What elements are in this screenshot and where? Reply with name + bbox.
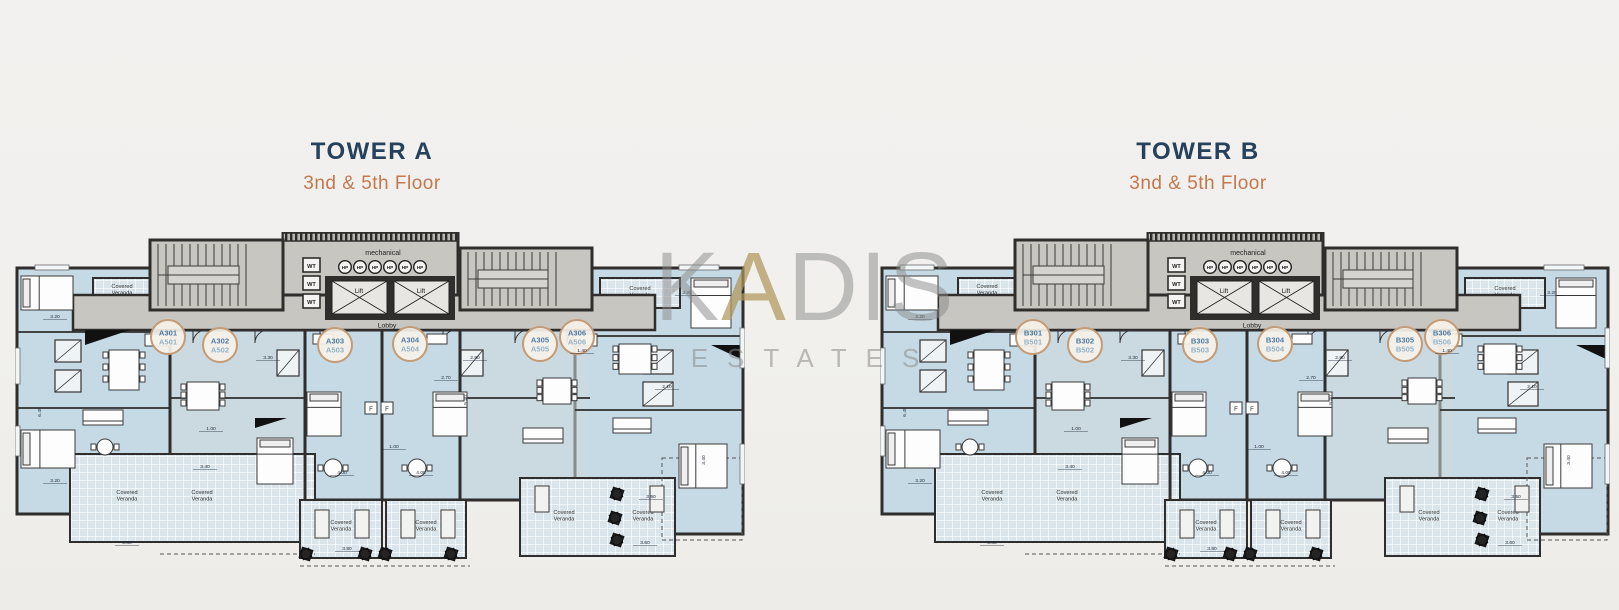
unit-badge-B303: B303B503 bbox=[1183, 328, 1217, 362]
plan-text: Veranda bbox=[1057, 497, 1079, 503]
bed-symbol bbox=[679, 444, 727, 488]
dimension: 3.50 bbox=[1511, 494, 1521, 500]
dimension: 3.20 bbox=[1547, 290, 1557, 296]
window bbox=[900, 265, 934, 270]
dimension: 3.30 bbox=[1128, 355, 1138, 361]
stairwell bbox=[1325, 248, 1457, 310]
unit-number-floor5: B504 bbox=[1266, 345, 1285, 354]
mechanical-label: mechanical bbox=[1230, 250, 1266, 257]
covered-veranda-label: Covered bbox=[111, 284, 132, 290]
covered-veranda-label: Veranda bbox=[1419, 517, 1441, 523]
unit-number-floor5: A506 bbox=[568, 338, 586, 347]
dimension: 4.00 bbox=[1281, 470, 1291, 476]
water-tank: WT bbox=[1168, 294, 1185, 308]
window bbox=[740, 444, 745, 484]
tower-b-subtitle: 3nd & 5th Floor bbox=[1038, 173, 1358, 195]
plan-text: Veranda bbox=[1498, 517, 1520, 523]
unit-badge-A302: A302A502 bbox=[203, 328, 237, 362]
heat-pump: HP bbox=[1279, 261, 1292, 274]
lobby-label: Lobby bbox=[378, 323, 397, 330]
core: WTWTWTmechanicalHPHPHPHPHPHPLiftLiftLobb… bbox=[938, 233, 1520, 330]
bed-symbol bbox=[21, 430, 75, 468]
plan-text: Veranda bbox=[633, 517, 655, 523]
dining-table bbox=[537, 378, 577, 404]
unit-number-floor5: B506 bbox=[1433, 338, 1451, 347]
window bbox=[679, 265, 719, 270]
plan-text: HP bbox=[417, 265, 423, 270]
heat-pump: HP bbox=[339, 261, 352, 274]
plan-text: HP bbox=[402, 265, 408, 270]
plan-text: Veranda bbox=[192, 497, 214, 503]
window bbox=[1605, 444, 1610, 484]
dimension: 2.80 bbox=[470, 355, 480, 361]
dimension: 3.20 bbox=[915, 478, 925, 484]
window bbox=[1605, 328, 1610, 368]
plan-text: WT bbox=[1172, 282, 1181, 288]
dimension: 1.00 bbox=[1254, 444, 1264, 450]
plan-text: F bbox=[1250, 407, 1254, 413]
dimension: 2.10 bbox=[662, 384, 672, 390]
stairwell bbox=[150, 240, 283, 310]
lift-label: Lift bbox=[417, 288, 426, 295]
lounger bbox=[355, 510, 369, 538]
plan-text: WT bbox=[1172, 264, 1181, 270]
dimension: 2.70 bbox=[1306, 375, 1316, 381]
covered-veranda-label: Veranda bbox=[1281, 527, 1303, 533]
unit-number-floor3: A304 bbox=[401, 336, 420, 345]
dimension: 1.40 bbox=[577, 348, 587, 354]
heat-pump: HP bbox=[384, 261, 397, 274]
lounger bbox=[1220, 510, 1234, 538]
unit-number-floor3: B306 bbox=[1433, 329, 1451, 338]
dining-table bbox=[613, 344, 657, 374]
bed-symbol bbox=[1122, 438, 1158, 484]
dining-table bbox=[968, 350, 1010, 390]
dimension: 3.20 bbox=[50, 314, 60, 320]
dimension: 3.80 bbox=[342, 546, 352, 552]
dimension: 4.00 bbox=[337, 470, 347, 476]
bed-symbol bbox=[1298, 392, 1332, 436]
dimension: 3.30 bbox=[263, 355, 273, 361]
lobby-label: Lobby bbox=[1243, 323, 1262, 330]
plan-text: HP bbox=[387, 265, 393, 270]
dimension: 2.10 bbox=[1527, 384, 1537, 390]
dimension: 1.00 bbox=[1071, 426, 1081, 432]
dimension: 3.80 bbox=[1207, 546, 1217, 552]
covered-veranda-label: Veranda bbox=[416, 527, 438, 533]
covered-veranda-label: Covered bbox=[1418, 510, 1439, 516]
unit-badge-B304: B304B504 bbox=[1258, 327, 1292, 361]
unit-badge-B305: B305B505 bbox=[1388, 327, 1422, 361]
dimension: 3.60 bbox=[640, 540, 650, 546]
unit-number-floor5: B505 bbox=[1396, 345, 1415, 354]
dining-table bbox=[103, 350, 145, 390]
dining-table bbox=[1478, 344, 1522, 374]
tower-b-title-block: TOWER B 3nd & 5th Floor bbox=[1038, 138, 1358, 195]
dimension: 3.40 bbox=[1566, 455, 1572, 465]
plan-text: Covered bbox=[1056, 490, 1077, 496]
dimension: 6.45 bbox=[902, 407, 908, 417]
heat-pump: HP bbox=[369, 261, 382, 274]
dimension: 3.20 bbox=[50, 478, 60, 484]
lift-shaft: Lift bbox=[1197, 281, 1252, 314]
dimension: 3.60 bbox=[1505, 540, 1515, 546]
stairwell bbox=[1015, 240, 1148, 310]
dimension: 3.20 bbox=[915, 314, 925, 320]
dimension: 3.20 bbox=[682, 290, 692, 296]
water-tank: WT bbox=[303, 258, 320, 272]
lift-shaft: Lift bbox=[394, 281, 449, 314]
bed-symbol bbox=[257, 438, 293, 484]
dimension: 5.40 bbox=[463, 395, 469, 405]
dimension: 3.80 bbox=[987, 540, 997, 546]
plan-text: Covered bbox=[191, 490, 212, 496]
plan-text: F bbox=[1234, 407, 1238, 413]
hatched-wall bbox=[1148, 233, 1323, 241]
unit-number-floor5: A505 bbox=[531, 345, 550, 354]
heat-pump: HP bbox=[414, 261, 427, 274]
dining-table bbox=[1046, 382, 1090, 410]
unit-badge-A304: A304A504 bbox=[393, 327, 427, 361]
heat-pump: HP bbox=[1204, 261, 1217, 274]
covered-veranda-label: Veranda bbox=[1196, 527, 1218, 533]
window bbox=[740, 328, 745, 368]
covered-veranda-label: Covered bbox=[981, 490, 1002, 496]
bed-symbol bbox=[21, 276, 73, 310]
water-tank: WT bbox=[1168, 276, 1185, 290]
dimension: 3.40 bbox=[701, 455, 707, 465]
sofa bbox=[1388, 428, 1428, 443]
heat-pump: HP bbox=[1264, 261, 1277, 274]
plan-text: F bbox=[369, 407, 373, 413]
dining-table bbox=[181, 382, 225, 410]
plan-text: HP bbox=[1252, 265, 1258, 270]
sofa bbox=[613, 418, 651, 433]
kitchen-counter bbox=[1292, 334, 1312, 344]
covered-veranda-label: Covered bbox=[629, 286, 650, 292]
lounger bbox=[401, 510, 415, 538]
window bbox=[880, 348, 885, 384]
heat-pump: HP bbox=[1234, 261, 1247, 274]
lounger bbox=[1180, 510, 1194, 538]
dimension: 2.70 bbox=[441, 375, 451, 381]
lounger bbox=[1306, 510, 1320, 538]
floor-plan-tower-a: CoveredVerandaCoveredVerandaCoveredVeran… bbox=[15, 232, 745, 584]
plan-text: HP bbox=[372, 265, 378, 270]
unit-number-floor3: B305 bbox=[1396, 336, 1415, 345]
window bbox=[35, 265, 69, 270]
heat-pump: HP bbox=[1249, 261, 1262, 274]
plan-text: HP bbox=[357, 265, 363, 270]
sofa bbox=[948, 410, 988, 425]
tower-a-subtitle: 3nd & 5th Floor bbox=[212, 173, 532, 195]
lift-shaft: Lift bbox=[332, 281, 387, 314]
stairwell bbox=[460, 248, 592, 310]
water-tank: WT bbox=[303, 276, 320, 290]
bed-symbol bbox=[433, 392, 467, 436]
tower-a-title: TOWER A bbox=[212, 138, 532, 166]
heat-pump: HP bbox=[1219, 261, 1232, 274]
unit-number-floor3: A302 bbox=[211, 337, 229, 346]
unit-number-floor3: B302 bbox=[1076, 337, 1094, 346]
dining-table bbox=[1402, 378, 1442, 404]
core: WTWTWTmechanicalHPHPHPHPHPHPLiftLiftLobb… bbox=[73, 233, 655, 330]
sofa bbox=[523, 428, 563, 443]
window bbox=[15, 348, 20, 384]
dimension: 3.40 bbox=[1065, 464, 1075, 470]
unit-number-floor5: A502 bbox=[211, 346, 229, 355]
window bbox=[880, 426, 885, 456]
dimension: 1.00 bbox=[389, 444, 399, 450]
lounger bbox=[535, 486, 549, 512]
tower-b-title: TOWER B bbox=[1038, 138, 1358, 166]
unit-number-floor3: A301 bbox=[159, 329, 178, 338]
dimension: 6.45 bbox=[37, 407, 43, 417]
window bbox=[15, 426, 20, 456]
dimension: 1.00 bbox=[206, 426, 216, 432]
plan-text: F bbox=[385, 407, 389, 413]
plan-text: WT bbox=[307, 300, 316, 306]
floor-plan-tower-b: CoveredVerandaCoveredVerandaCoveredVeran… bbox=[880, 232, 1610, 584]
lounger bbox=[441, 510, 455, 538]
covered-veranda-label: Covered bbox=[976, 284, 997, 290]
bed-symbol bbox=[1172, 392, 1206, 436]
hatched-wall bbox=[283, 233, 458, 241]
bed-symbol bbox=[691, 278, 731, 328]
dimension: 3.40 bbox=[200, 464, 210, 470]
unit-number-floor3: A305 bbox=[531, 336, 550, 345]
kitchen-counter bbox=[427, 334, 447, 344]
lounger bbox=[1400, 486, 1414, 512]
lounger bbox=[315, 510, 329, 538]
covered-veranda-label: Covered bbox=[1280, 520, 1301, 526]
unit-number-floor3: A303 bbox=[326, 337, 344, 346]
lift-bank: LiftLift bbox=[325, 276, 455, 320]
lift-shaft: Lift bbox=[1259, 281, 1314, 314]
lift-label: Lift bbox=[1282, 288, 1291, 295]
unit-badge-A301: A301A501 bbox=[151, 320, 185, 354]
lift-bank: LiftLift bbox=[1190, 276, 1320, 320]
bed-symbol bbox=[886, 276, 938, 310]
lounger bbox=[1266, 510, 1280, 538]
dimension: 3.80 bbox=[122, 540, 132, 546]
unit-number-floor5: B501 bbox=[1024, 338, 1043, 347]
heat-pump: HP bbox=[354, 261, 367, 274]
dimension: 1.40 bbox=[1442, 348, 1452, 354]
unit-number-floor5: B502 bbox=[1076, 346, 1094, 355]
bed-symbol bbox=[307, 392, 341, 436]
plan-text: HP bbox=[1282, 265, 1288, 270]
plan-text: WT bbox=[307, 282, 316, 288]
heat-pump: HP bbox=[399, 261, 412, 274]
plan-text: HP bbox=[1237, 265, 1243, 270]
dimension: 4.00 bbox=[1202, 470, 1212, 476]
dimension: 4.00 bbox=[416, 470, 426, 476]
plan-text: HP bbox=[1207, 265, 1213, 270]
sofa bbox=[83, 410, 123, 425]
covered-veranda-label: Covered bbox=[1195, 520, 1216, 526]
covered-veranda-label: Veranda bbox=[331, 527, 353, 533]
unit-number-floor3: B301 bbox=[1024, 329, 1043, 338]
unit-number-floor3: A306 bbox=[568, 329, 586, 338]
tower-a-title-block: TOWER A 3nd & 5th Floor bbox=[212, 138, 532, 195]
dimension: 5.40 bbox=[1328, 395, 1334, 405]
page: TOWER A 3nd & 5th Floor TOWER B 3nd & 5t… bbox=[0, 0, 1619, 610]
sofa bbox=[1478, 418, 1516, 433]
unit-number-floor3: B304 bbox=[1266, 336, 1285, 345]
mechanical-label: mechanical bbox=[365, 250, 401, 257]
unit-number-floor5: A504 bbox=[401, 345, 420, 354]
unit-badge-A305: A305A505 bbox=[523, 327, 557, 361]
unit-badge-B302: B302B502 bbox=[1068, 328, 1102, 362]
unit-number-floor5: B503 bbox=[1191, 346, 1209, 355]
bed-symbol bbox=[1544, 444, 1592, 488]
covered-veranda-label: Veranda bbox=[982, 497, 1004, 503]
covered-veranda-label: Covered bbox=[330, 520, 351, 526]
covered-veranda-label: Veranda bbox=[554, 517, 576, 523]
lift-label: Lift bbox=[355, 288, 364, 295]
covered-veranda-label: Covered bbox=[553, 510, 574, 516]
plan-text: WT bbox=[307, 264, 316, 270]
plan-text: HP bbox=[342, 265, 348, 270]
covered-veranda-label: Covered bbox=[1494, 286, 1515, 292]
bed-symbol bbox=[886, 430, 940, 468]
water-tank: WT bbox=[1168, 258, 1185, 272]
covered-veranda-label: Veranda bbox=[117, 497, 139, 503]
lift-label: Lift bbox=[1220, 288, 1229, 295]
plan-text: WT bbox=[1172, 300, 1181, 306]
covered-veranda-label: Covered bbox=[116, 490, 137, 496]
water-tank: WT bbox=[303, 294, 320, 308]
unit-number-floor5: A501 bbox=[159, 338, 178, 347]
unit-number-floor5: A503 bbox=[326, 346, 344, 355]
dimension: 3.50 bbox=[646, 494, 656, 500]
unit-number-floor3: B303 bbox=[1191, 337, 1209, 346]
plan-text: HP bbox=[1267, 265, 1273, 270]
plan-text: HP bbox=[1222, 265, 1228, 270]
dimension: 2.80 bbox=[1335, 355, 1345, 361]
unit-badge-B301: B301B501 bbox=[1016, 320, 1050, 354]
unit-badge-A303: A303A503 bbox=[318, 328, 352, 362]
window bbox=[1544, 265, 1584, 270]
bed-symbol bbox=[1556, 278, 1596, 328]
covered-veranda-label: Covered bbox=[415, 520, 436, 526]
